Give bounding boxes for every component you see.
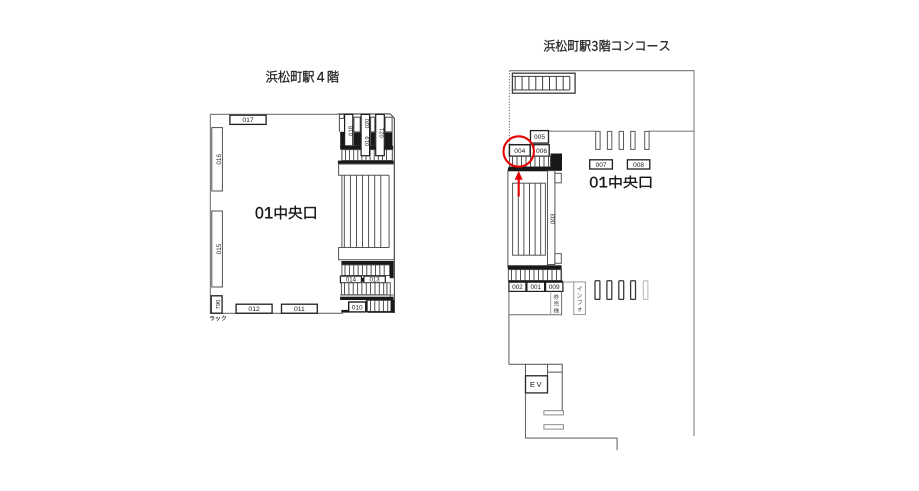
svg-text:EV: EV [530, 380, 543, 389]
svg-text:016: 016 [216, 154, 223, 165]
svg-text:017: 017 [242, 117, 254, 124]
svg-text:021: 021 [380, 128, 386, 138]
svg-text:019: 019 [365, 136, 371, 146]
svg-text:006: 006 [536, 148, 547, 155]
svg-text:011: 011 [294, 306, 305, 313]
svg-text:018: 018 [348, 125, 354, 136]
svg-text:002: 002 [512, 284, 523, 291]
svg-text:790: 790 [216, 300, 222, 310]
svg-text:005: 005 [534, 134, 545, 141]
svg-text:010: 010 [352, 304, 363, 311]
svg-text:003: 003 [550, 213, 557, 224]
svg-text:009: 009 [549, 284, 560, 291]
svg-text:020: 020 [365, 118, 371, 129]
svg-text:007: 007 [596, 162, 607, 169]
svg-text:015: 015 [216, 243, 223, 254]
svg-text:004: 004 [514, 148, 525, 155]
svg-text:001: 001 [530, 284, 541, 291]
svg-text:008: 008 [633, 162, 644, 169]
svg-text:012: 012 [248, 306, 260, 313]
